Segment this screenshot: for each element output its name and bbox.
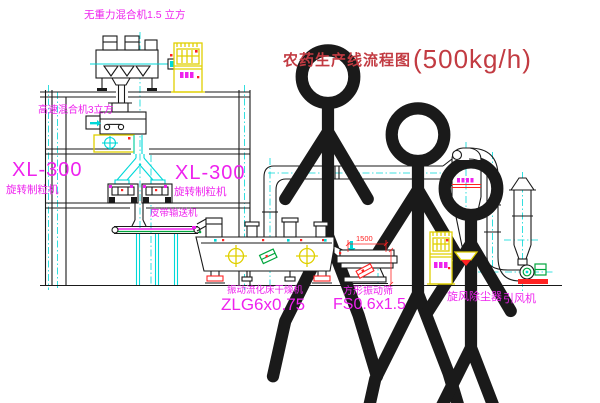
fan-drawing	[518, 259, 548, 284]
gravity-mixer-drawing	[90, 36, 177, 104]
bucket-elevator-top	[171, 43, 205, 92]
person-figure	[273, 50, 377, 376]
diagram-canvas: 农药生产线流程图 (500kg/h) 无重力混合机1.5 立方 高速混合机3立方…	[0, 0, 600, 403]
label-gravity-mixer: 无重力混合机1.5 立方	[84, 10, 186, 21]
title-text: 农药生产线流程图	[283, 49, 411, 70]
belt-conveyor-drawing	[112, 227, 200, 286]
label-granulator-right-name: 旋转制粒机	[174, 187, 227, 198]
label-granulator-left-name: 旋转制粒机	[6, 185, 59, 196]
label-fan: 引风机	[503, 294, 536, 305]
label-granulator-right-model: XL-300	[175, 163, 246, 183]
bucket-elevator-right	[427, 232, 455, 284]
granulator-left-drawing	[108, 184, 138, 203]
granulator-right-drawing	[142, 184, 172, 203]
label-dryer-model: ZLG6x0.75	[221, 296, 305, 313]
label-speed-mixer: 高速混合机3立方	[38, 106, 114, 116]
drawing-title: 农药生产线流程图 (500kg/h)	[283, 44, 532, 75]
label-cyclone: 旋风除尘器	[447, 292, 502, 303]
label-belt-conveyor: 皮带输送机	[150, 209, 198, 219]
title-capacity: (500kg/h)	[413, 44, 532, 75]
discharge-duct	[132, 203, 146, 226]
label-screen-model: FS0.6x1.5	[333, 297, 406, 313]
label-screen-dimension: 1500	[356, 235, 373, 243]
label-granulator-left-model: XL-300	[12, 160, 83, 180]
